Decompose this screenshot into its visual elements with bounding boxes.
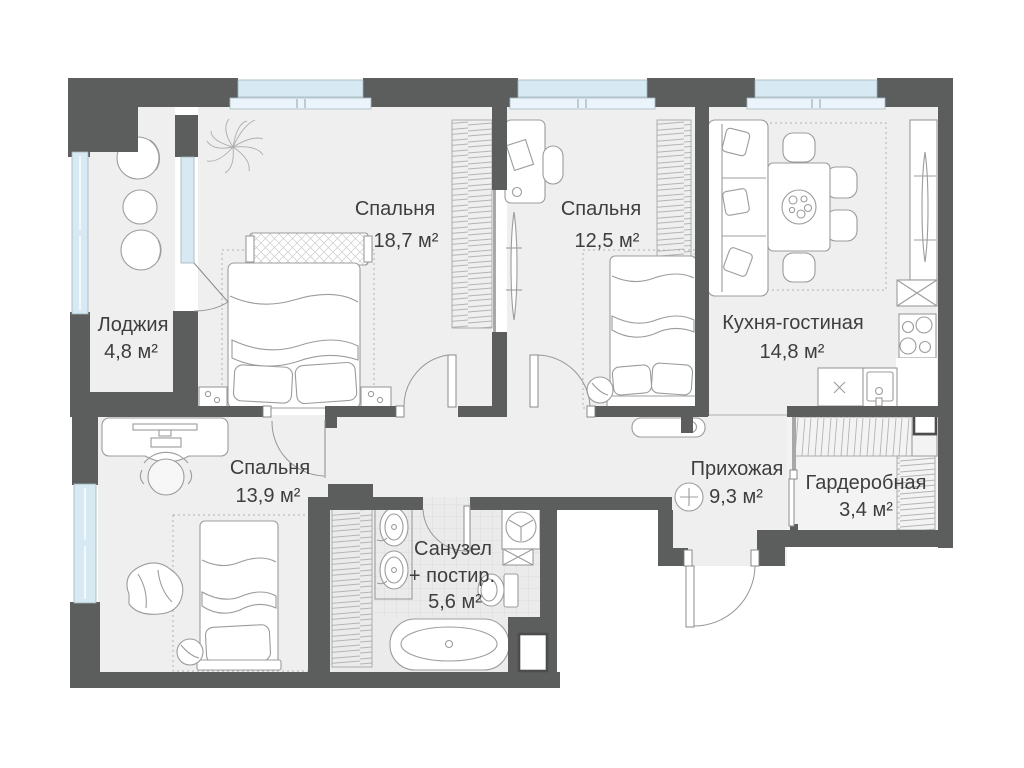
bedroom-1-name: Спальня: [355, 198, 435, 220]
hallway-bench: [632, 418, 705, 437]
nightstand: [199, 387, 227, 407]
window-bedroom-3: [74, 484, 96, 603]
kitchen-counter-corner: [896, 358, 937, 406]
pillow: [205, 624, 271, 663]
pillow: [612, 364, 652, 395]
floor-plan-page: Лоджия 4,8 м² Спальня 18,7 м² Спальня 12…: [0, 0, 1024, 768]
hallway-name: Прихожая: [691, 458, 784, 480]
loggia-round-chair-2: [121, 230, 161, 270]
sofa: [708, 120, 768, 296]
loggia-round-table: [123, 190, 157, 224]
wardrobe-area: 3,4 м²: [839, 499, 893, 521]
corner-cabinet: [897, 280, 937, 306]
bathroom-name-2: + постир.: [409, 565, 495, 587]
vent-box: [503, 549, 533, 565]
loggia-area: 4,8 м²: [104, 341, 158, 363]
window: [510, 80, 655, 109]
pouf: [177, 639, 203, 665]
wardrobe-closet: [657, 120, 691, 262]
desk: [102, 418, 228, 462]
bedroom-3-area: 13,9 м²: [236, 485, 301, 507]
double-bed: [607, 256, 697, 408]
washing-machine-icon: [502, 505, 540, 549]
keyboard: [151, 438, 181, 447]
monitor: [133, 424, 197, 430]
loggia-name: Лоджия: [98, 314, 169, 336]
chair: [826, 167, 857, 198]
bedroom-2-area: 12,5 м²: [575, 230, 640, 252]
headboard: [197, 660, 281, 670]
window-loggia-side: [72, 152, 88, 314]
bedroom-2-name: Спальня: [561, 198, 641, 220]
room-loggia: [117, 137, 161, 270]
bedroom-3-name: Спальня: [230, 457, 310, 479]
bathroom-shaft: [519, 634, 547, 671]
sofa-pillow: [721, 127, 750, 156]
stove-icon: [899, 314, 936, 358]
pillow: [651, 363, 693, 396]
kitchen-tall-cabinet: [910, 120, 937, 280]
pillow: [233, 365, 293, 404]
bathroom-area: 5,6 м²: [428, 591, 482, 613]
bed-bench: [246, 233, 372, 265]
pouf: [587, 377, 613, 403]
desk-chair: [543, 146, 563, 184]
bathroom-name: Санузел: [414, 538, 492, 560]
floor-plan: Лоджия 4,8 м² Спальня 18,7 м² Спальня 12…: [0, 0, 1024, 768]
loggia-partition-glazing: [181, 157, 194, 263]
hallway-area: 9,3 м²: [709, 486, 763, 508]
single-bed: [197, 521, 281, 670]
chair: [783, 133, 815, 162]
wardrobe-partition: [792, 417, 796, 470]
wardrobe-closet: [452, 120, 492, 328]
wardrobe-name: Гардеробная: [806, 472, 927, 494]
kitchen-living-name: Кухня-гостиная: [722, 312, 864, 334]
bedroom-1-area: 18,7 м²: [374, 230, 439, 252]
sofa-pillow: [722, 188, 750, 216]
linen-closet: [332, 500, 372, 667]
double-bed: [228, 263, 360, 408]
wardrobe-shelving: [793, 417, 912, 456]
window: [747, 80, 885, 109]
chair: [783, 253, 815, 282]
kitchen-living-area: 14,8 м²: [760, 341, 825, 363]
nightstand: [361, 387, 391, 407]
window: [230, 80, 371, 109]
bathtub-icon: [390, 619, 509, 670]
chair: [826, 210, 857, 241]
kitchen-counter: [818, 368, 863, 406]
kitchen-sink-icon: [863, 368, 897, 407]
pillow: [295, 362, 358, 404]
ceiling-light-icon: [675, 483, 703, 511]
